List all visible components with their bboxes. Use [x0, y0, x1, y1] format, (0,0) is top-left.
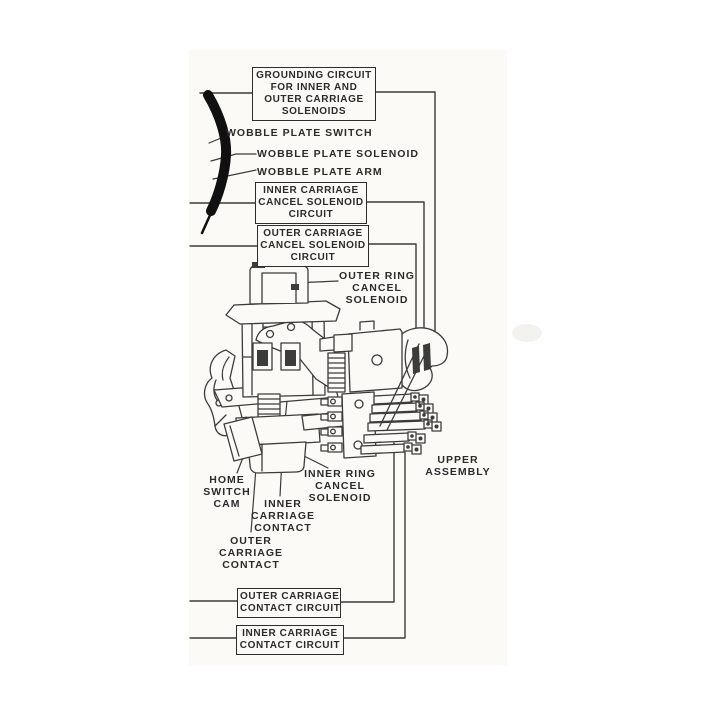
solenoid-side-tab — [291, 284, 299, 290]
label-line: CANCEL — [294, 480, 386, 492]
box-line: OUTER CARRIAGE — [260, 228, 366, 240]
inner-carriage-cancel-solenoid-circuit-box: INNER CARRIAGE CANCEL SOLENOID CIRCUIT — [255, 182, 367, 224]
leader-wobble-solenoid — [211, 154, 256, 161]
box-line: CIRCUIT — [260, 252, 366, 264]
label-line: CONTACT — [214, 559, 288, 571]
main-plate-hole — [372, 355, 382, 365]
wobble-plate-arm-label: WOBBLE PLATE ARM — [257, 166, 383, 178]
box-line: CONTACT CIRCUIT — [240, 603, 338, 615]
outer-ring-cancel-solenoid-label: OUTER RING CANCEL SOLENOID — [318, 270, 436, 306]
box-line: OUTER CARRIAGE — [255, 94, 373, 106]
scan-smudge — [512, 324, 542, 342]
right-spring-coils — [328, 358, 345, 388]
box-line: OUTER CARRIAGE — [240, 591, 338, 603]
label-line: INNER — [247, 498, 319, 510]
inner-contact-point — [285, 350, 296, 366]
label-line: ASSEMBLY — [418, 466, 498, 478]
label-line: CANCEL — [318, 282, 436, 294]
box-line: CONTACT CIRCUIT — [239, 640, 341, 652]
main-plate-tab — [360, 321, 374, 330]
box-line: FOR INNER AND — [255, 82, 373, 94]
diagram-page: GROUNDING CIRCUIT FOR INNER AND OUTER CA… — [0, 0, 720, 720]
box-line: CANCEL SOLENOID — [258, 197, 364, 209]
grounding-circuit-box: GROUNDING CIRCUIT FOR INNER AND OUTER CA… — [252, 67, 376, 121]
pivot-1 — [267, 331, 274, 338]
outer-carriage-contact-circuit-box: OUTER CARRIAGE CONTACT CIRCUIT — [237, 588, 341, 618]
wobble-plate-switch-label: WOBBLE PLATE SWITCH — [226, 127, 373, 139]
outer-contact-point — [257, 350, 268, 366]
label-line: OUTER RING — [318, 270, 436, 282]
box-line: INNER CARRIAGE — [239, 628, 341, 640]
label-line: CARRIAGE — [214, 547, 288, 559]
box-line: GROUNDING CIRCUIT — [255, 70, 373, 82]
outer-carriage-cancel-solenoid-circuit-box: OUTER CARRIAGE CANCEL SOLENOID CIRCUIT — [257, 225, 369, 267]
outer-ring-solenoid-core — [262, 273, 296, 303]
wobble-plate-solenoid-label: WOBBLE PLATE SOLENOID — [257, 148, 419, 160]
label-line: CONTACT — [247, 522, 319, 534]
upper-assembly-label: UPPER ASSEMBLY — [418, 454, 498, 478]
box-line: SOLENOIDS — [255, 106, 373, 118]
wire-outer-contact-right — [341, 443, 394, 602]
label-line: OUTER — [214, 535, 288, 547]
wobble-plate-arc — [202, 95, 226, 233]
inner-carriage-contact-circuit-box: INNER CARRIAGE CONTACT CIRCUIT — [236, 625, 344, 655]
label-line: SOLENOID — [318, 294, 436, 306]
box-line: CIRCUIT — [258, 209, 364, 221]
terminal-plate-hole-1 — [355, 400, 363, 408]
inner-carriage-contact-label: INNER CARRIAGE CONTACT — [247, 498, 319, 534]
label-line: SWITCH — [196, 486, 258, 498]
box-line: CANCEL SOLENOID — [260, 240, 366, 252]
label-line: INNER RING — [294, 468, 386, 480]
outer-carriage-contact-label: OUTER CARRIAGE CONTACT — [214, 535, 288, 571]
base-screw — [226, 395, 232, 401]
label-line: HOME — [196, 474, 258, 486]
pivot-2 — [288, 324, 295, 331]
label-line: CARRIAGE — [247, 510, 319, 522]
box-line: INNER CARRIAGE — [258, 185, 364, 197]
label-line: UPPER — [418, 454, 498, 466]
upper-assembly-drawing — [320, 321, 447, 458]
